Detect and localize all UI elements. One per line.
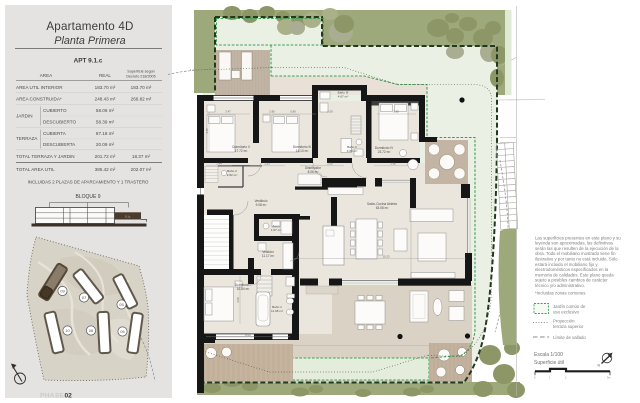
svg-text:Las superficies presentes en e: Las superficies presentes en este plano … bbox=[535, 235, 621, 240]
svg-text:sujeto a posibles cambios de c: sujeto a posibles cambios de carácter bbox=[535, 278, 608, 283]
svg-text:248.43 m²: 248.43 m² bbox=[95, 97, 116, 102]
svg-text:PHASE: PHASE bbox=[40, 393, 65, 400]
svg-text:183.70 m²: 183.70 m² bbox=[131, 85, 152, 90]
svg-text:CUBIERTA: CUBIERTA bbox=[43, 131, 67, 136]
svg-text:AREA: AREA bbox=[40, 73, 53, 78]
svg-text:3.98: 3.98 bbox=[390, 162, 396, 166]
svg-text:3.98: 3.98 bbox=[393, 110, 399, 114]
svg-text:2.09: 2.09 bbox=[327, 110, 333, 114]
svg-text:4.60 m²: 4.60 m² bbox=[347, 149, 358, 153]
svg-text:202.07 m²: 202.07 m² bbox=[131, 167, 152, 172]
svg-text:técnico y/o administrativo.: técnico y/o administrativo. bbox=[535, 283, 585, 288]
svg-text:*Incluidas zonas comunes: *Incluidas zonas comunes bbox=[535, 291, 586, 296]
svg-text:4.67 m²: 4.67 m² bbox=[338, 95, 349, 99]
svg-text:leyenda son aproximadas, las d: leyenda son aproximadas, las definitivas bbox=[535, 241, 614, 246]
svg-text:8.00: 8.00 bbox=[245, 333, 251, 337]
svg-text:11.17 m²: 11.17 m² bbox=[262, 254, 274, 258]
svg-text:memoria de calidades. Este pla: memoria de calidades. Este plano queda bbox=[535, 272, 614, 277]
svg-text:385.42 m²: 385.42 m² bbox=[95, 167, 116, 172]
svg-text:3.47: 3.47 bbox=[225, 110, 231, 114]
svg-text:09: 09 bbox=[60, 289, 65, 294]
svg-text:Decreto 218/2005: Decreto 218/2005 bbox=[126, 75, 155, 79]
svg-text:58.39 m²: 58.39 m² bbox=[96, 120, 115, 125]
svg-text:4.08: 4.08 bbox=[236, 297, 240, 303]
svg-text:estará incluido el mobiliario: estará incluido el mobiliario fijo y bbox=[535, 262, 598, 267]
svg-text:Escala 1/100: Escala 1/100 bbox=[534, 352, 563, 358]
svg-text:07: 07 bbox=[82, 295, 87, 300]
svg-text:05: 05 bbox=[119, 302, 124, 307]
svg-text:2.80: 2.80 bbox=[269, 110, 275, 114]
svg-text:electrodomésticos especificado: electrodomésticos especificados en la bbox=[535, 267, 609, 272]
svg-text:14.13 m²: 14.13 m² bbox=[296, 149, 309, 153]
svg-text:AREA CONSTRUIDA*: AREA CONSTRUIDA* bbox=[16, 97, 62, 102]
svg-text:183.70 m²: 183.70 m² bbox=[95, 85, 116, 90]
svg-text:DESCUBIERTA: DESCUBIERTA bbox=[43, 142, 76, 147]
svg-text:11.08 m²: 11.08 m² bbox=[271, 309, 283, 313]
svg-text:obra. Todo el mobiliario mostr: obra. Todo el mobiliario mostrado tiene … bbox=[535, 251, 616, 256]
svg-text:Apartamento 4D: Apartamento 4D bbox=[46, 20, 133, 33]
svg-text:CUBIERTO: CUBIERTO bbox=[43, 108, 67, 113]
svg-text:8.06 m²: 8.06 m² bbox=[308, 170, 319, 174]
svg-text:02: 02 bbox=[65, 393, 73, 400]
svg-text:16.84 m²: 16.84 m² bbox=[237, 287, 250, 291]
svg-text:9.1c: 9.1c bbox=[125, 214, 131, 218]
svg-text:2.00: 2.00 bbox=[327, 162, 333, 166]
svg-text:201.72 m²: 201.72 m² bbox=[95, 154, 116, 159]
svg-text:Superficie útil: Superficie útil bbox=[534, 360, 564, 366]
svg-text:AREA UTIL INTERIOR: AREA UTIL INTERIOR bbox=[16, 85, 63, 90]
svg-text:23.72 m²: 23.72 m² bbox=[378, 150, 391, 154]
svg-text:58.06 m²: 58.06 m² bbox=[96, 108, 115, 113]
svg-text:BLOQUE 9: BLOQUE 9 bbox=[75, 194, 100, 200]
svg-text:266.82 m²: 266.82 m² bbox=[131, 97, 152, 102]
svg-text:serán las que resulten de la e: serán las que resulten de la ejecución d… bbox=[535, 246, 619, 251]
svg-text:Planta Primera: Planta Primera bbox=[54, 35, 125, 47]
svg-text:20.09 m²: 20.09 m² bbox=[96, 142, 115, 147]
svg-text:Proyección: Proyección bbox=[553, 319, 575, 324]
svg-text:uso exclusivo: uso exclusivo bbox=[553, 310, 580, 315]
svg-text:9.08 m²: 9.08 m² bbox=[256, 203, 267, 207]
svg-text:TOTAL TERRAZA Y JARDIN: TOTAL TERRAZA Y JARDIN bbox=[16, 154, 75, 159]
svg-text:1.44: 1.44 bbox=[216, 162, 222, 166]
svg-text:REAL: REAL bbox=[99, 73, 111, 78]
svg-text:08: 08 bbox=[89, 328, 94, 333]
svg-text:1.67 m²: 1.67 m² bbox=[271, 228, 282, 232]
svg-text:TERRAZA: TERRAZA bbox=[16, 136, 38, 141]
svg-text:terraza superior: terraza superior bbox=[553, 324, 584, 329]
svg-text:ilustrativo y por tanto no est: ilustrativo y por tanto no está incluido… bbox=[535, 257, 618, 262]
svg-text:0.89: 0.89 bbox=[290, 110, 296, 114]
svg-text:2.82 m²: 2.82 m² bbox=[227, 173, 238, 177]
svg-text:87.18 m²: 87.18 m² bbox=[96, 131, 115, 136]
svg-text:17.72 m²: 17.72 m² bbox=[235, 149, 248, 153]
svg-text:10: 10 bbox=[65, 328, 70, 333]
svg-text:4.45: 4.45 bbox=[205, 128, 209, 134]
svg-text:10.23: 10.23 bbox=[383, 255, 390, 259]
svg-text:5m: 5m bbox=[607, 376, 611, 380]
svg-text:INCLUIDAS 2 PLAZAS DE APARCAMI: INCLUIDAS 2 PLAZAS DE APARCAMIENTO Y 1 T… bbox=[28, 180, 149, 185]
svg-text:06: 06 bbox=[120, 329, 125, 334]
svg-text:Límite de vallado: Límite de vallado bbox=[553, 335, 586, 340]
svg-text:TOTAL AREA UTIL: TOTAL AREA UTIL bbox=[16, 167, 55, 172]
svg-text:63.08 m²: 63.08 m² bbox=[376, 206, 389, 210]
svg-text:18.37 m²: 18.37 m² bbox=[132, 154, 151, 159]
svg-text:Superficie según: Superficie según bbox=[127, 70, 154, 74]
svg-text:JARDIN: JARDIN bbox=[16, 114, 33, 119]
svg-text:1.50: 1.50 bbox=[264, 162, 270, 166]
svg-text:DESCUBIERTO: DESCUBIERTO bbox=[43, 120, 76, 125]
svg-text:APT 9.1.c: APT 9.1.c bbox=[74, 58, 103, 65]
svg-text:Jardín común de: Jardín común de bbox=[553, 304, 586, 309]
